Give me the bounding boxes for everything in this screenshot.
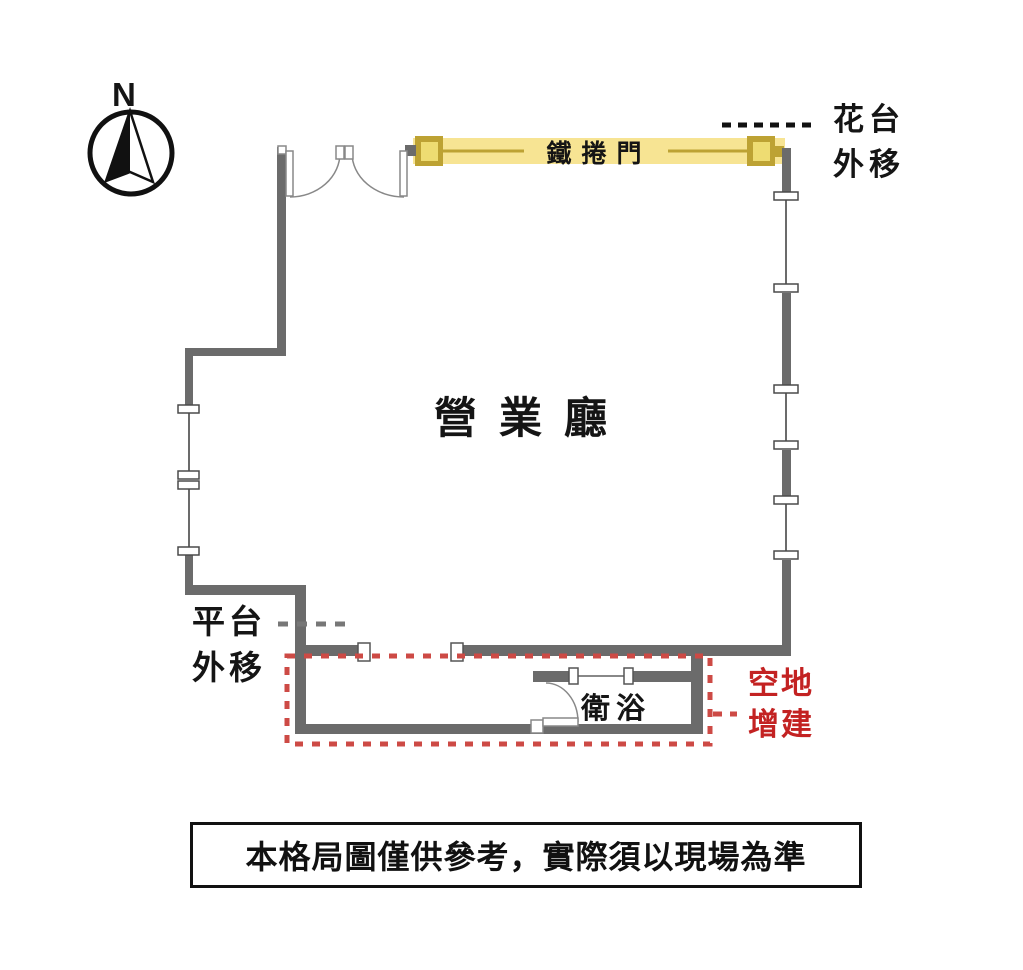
door-swing-arc-right [352,153,404,197]
vacant-addition-line2: 增建 [748,707,814,742]
window-sill [774,496,798,504]
wall-annex-right [691,656,703,734]
roller-door-label: 鐵捲門 [413,134,785,170]
vacant-addition-line1: 空地 [748,666,814,701]
flower-bed-label-line2: 外移 [833,147,905,182]
wall-bathroom-partition-right [632,671,691,682]
door-leaf-right [400,151,407,196]
bathroom-door [531,683,578,733]
window-sill [774,385,798,393]
door-jamb [278,146,286,154]
windows [178,192,798,559]
door-meeting-stile [345,146,353,159]
compass-north-label: N [112,76,137,114]
wall-right-3 [782,450,791,497]
door-jamb [531,720,543,733]
wall-right-2 [782,293,791,385]
door-swing-arc [546,683,578,722]
compass-icon [90,111,172,194]
partition-jamb [569,668,578,684]
bathroom-label: 衛浴 [581,685,651,727]
wall-upper-step-horizontal [185,348,286,356]
door-leaf [543,718,578,726]
wall-left-annex-vertical [295,585,306,734]
window-sill [774,284,798,292]
window-sill [178,405,199,413]
window-sill [774,551,798,559]
door-leaf-left [286,151,293,196]
hall-room-label: 營業廳 [434,384,629,446]
partition-jamb [624,668,633,684]
window-sill [774,192,798,200]
entry-double-door [278,145,416,197]
door-meeting-stile [336,146,344,159]
wall-right-4 [782,560,791,651]
bathroom-partition [569,668,633,684]
flower-bed-label: 花台外移 [833,97,905,187]
disclaimer-box: 本格局圖僅供參考，實際須以現場為準 [190,822,862,888]
window-sill [178,481,199,489]
disclaimer-text: 本格局圖僅供參考，實際須以現場為準 [245,832,806,878]
wall-bathroom-partition-left [533,671,571,682]
wall-top-left-vertical [277,147,286,353]
window-sill [178,547,199,555]
platform-label-line2: 外移 [192,649,266,686]
wall-lower-step-horizontal [185,585,306,595]
window-sill [178,471,199,479]
platform-label-line1: 平台 [192,603,266,640]
floor-plan: N 鐵捲門 花台外移 營業廳 平台外移 衛浴 空地增建 本格局圖僅供參考，實際須… [0,0,1023,970]
door-swing-arc-left [290,153,340,197]
flower-bed-label-line1: 花台 [833,102,905,137]
vacant-addition-label: 空地增建 [748,663,814,745]
window-sill [774,441,798,449]
wall-left-upper [185,348,193,408]
platform-label: 平台外移 [192,599,266,691]
